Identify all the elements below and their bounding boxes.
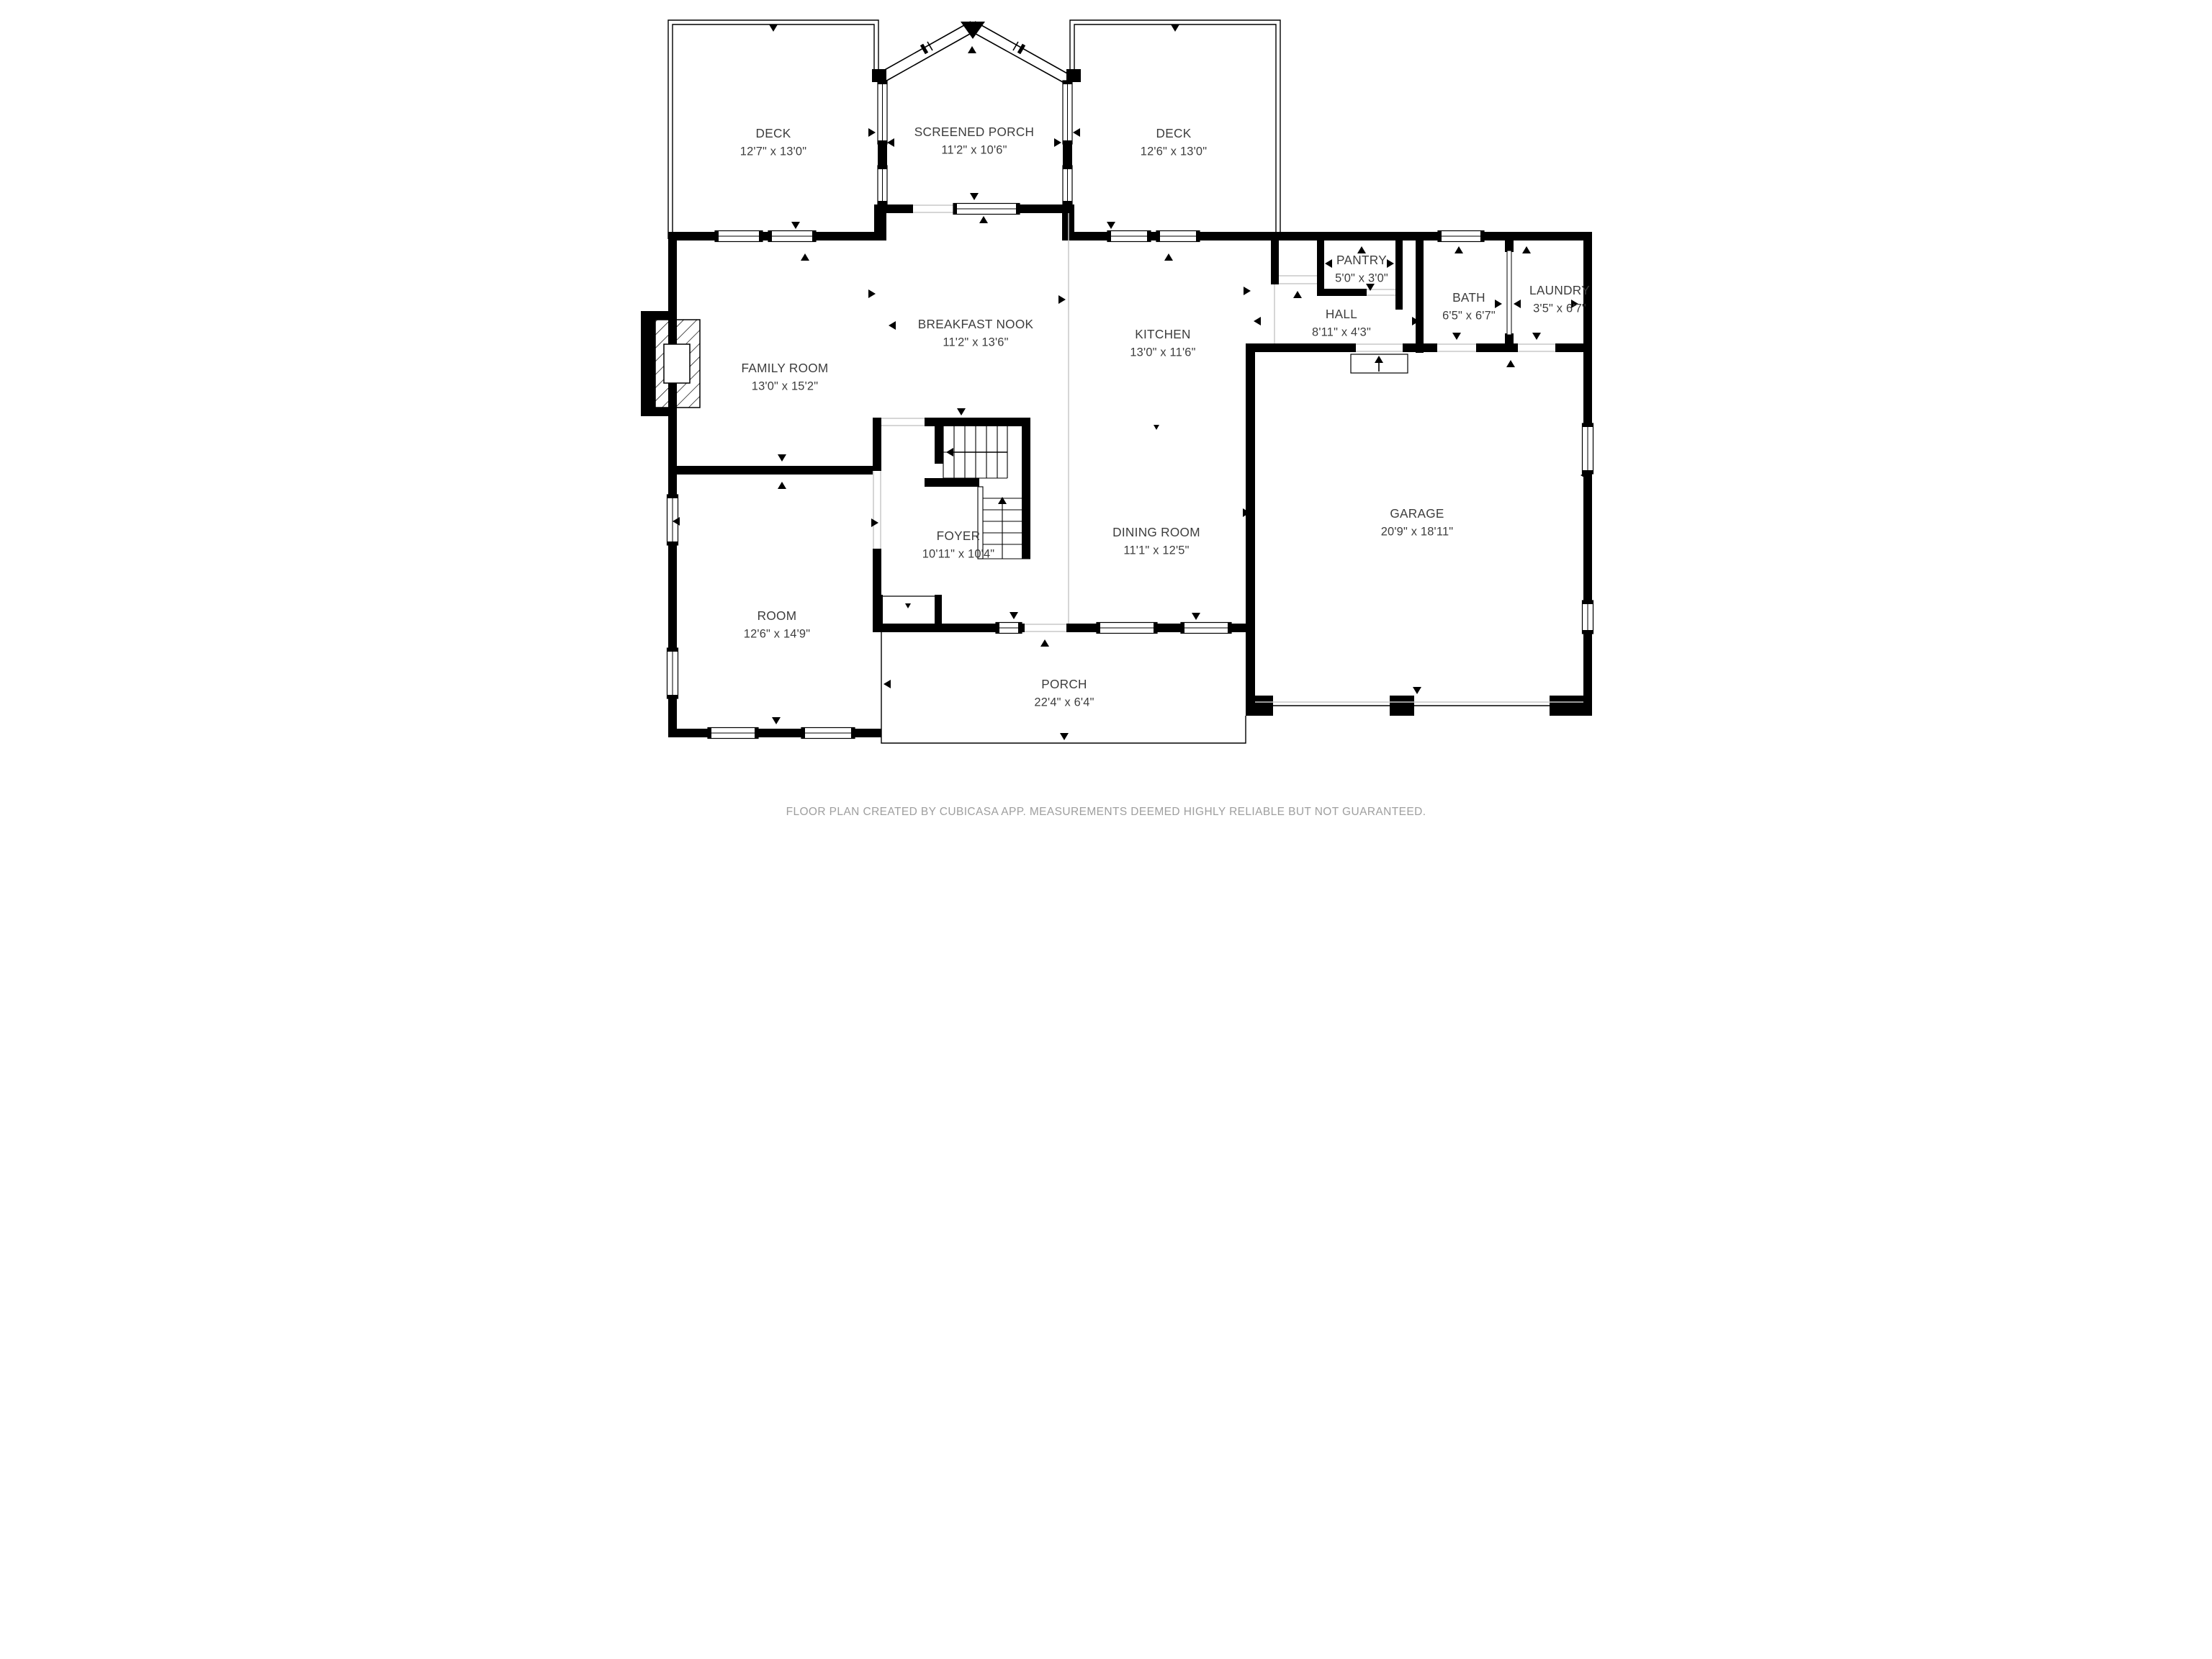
gable-eave-block-left <box>872 69 886 82</box>
room-dimensions: 12'6" x 13'0" <box>1141 145 1208 158</box>
room-dimensions: 6'5" x 6'7" <box>1442 310 1496 323</box>
firebox <box>664 344 690 383</box>
room-name: DECK <box>1156 126 1192 140</box>
room-name: LAUNDRY <box>1529 283 1590 297</box>
room-dimensions: 10'11" x 10'4" <box>922 548 995 561</box>
room-name: FAMILY ROOM <box>741 361 828 375</box>
gable-eave-block-right <box>1066 69 1081 82</box>
room-dimensions: 12'6" x 14'9" <box>744 628 811 641</box>
room-dimensions: 3'5" x 6'7" <box>1533 302 1586 315</box>
room-name: PANTRY <box>1336 253 1387 267</box>
room-name: KITCHEN <box>1135 327 1191 341</box>
room-dimensions: 11'2" x 13'6" <box>943 336 1008 349</box>
footer-attribution: FLOOR PLAN CREATED BY CUBICASA APP. MEAS… <box>786 806 1426 818</box>
room-name: SCREENED PORCH <box>914 125 1035 139</box>
floorplan-page: DECK12'7" x 13'0"SCREENED PORCH11'2" x 1… <box>553 0 1659 829</box>
room-name: GARAGE <box>1390 506 1444 521</box>
room-dimensions: 13'0" x 15'2" <box>752 380 819 393</box>
hall-garage-step <box>1351 354 1408 373</box>
room-name: FOYER <box>937 529 981 543</box>
room-name: BATH <box>1452 290 1485 305</box>
room-name: HALL <box>1326 307 1357 321</box>
room-name: DINING ROOM <box>1112 525 1200 539</box>
room-dimensions: 11'2" x 10'6" <box>941 144 1007 157</box>
room-dimensions: 12'7" x 13'0" <box>740 145 807 158</box>
room-dimensions: 8'11" x 4'3" <box>1312 326 1371 339</box>
room-dimensions: 11'1" x 12'5" <box>1123 544 1189 557</box>
room-name: ROOM <box>757 608 797 623</box>
room-dimensions: 13'0" x 11'6" <box>1130 346 1195 359</box>
room-dimensions: 20'9" x 18'11" <box>1381 526 1454 539</box>
room-name: BREAKFAST NOOK <box>918 317 1034 331</box>
room-dimensions: 22'4" x 6'4" <box>1034 696 1094 709</box>
room-dimensions: 5'0" x 3'0" <box>1335 272 1388 285</box>
room-name: DECK <box>756 126 791 140</box>
fireplace <box>641 311 700 416</box>
room-name: PORCH <box>1041 677 1087 691</box>
floorplan-svg: DECK12'7" x 13'0"SCREENED PORCH11'2" x 1… <box>553 0 1659 829</box>
